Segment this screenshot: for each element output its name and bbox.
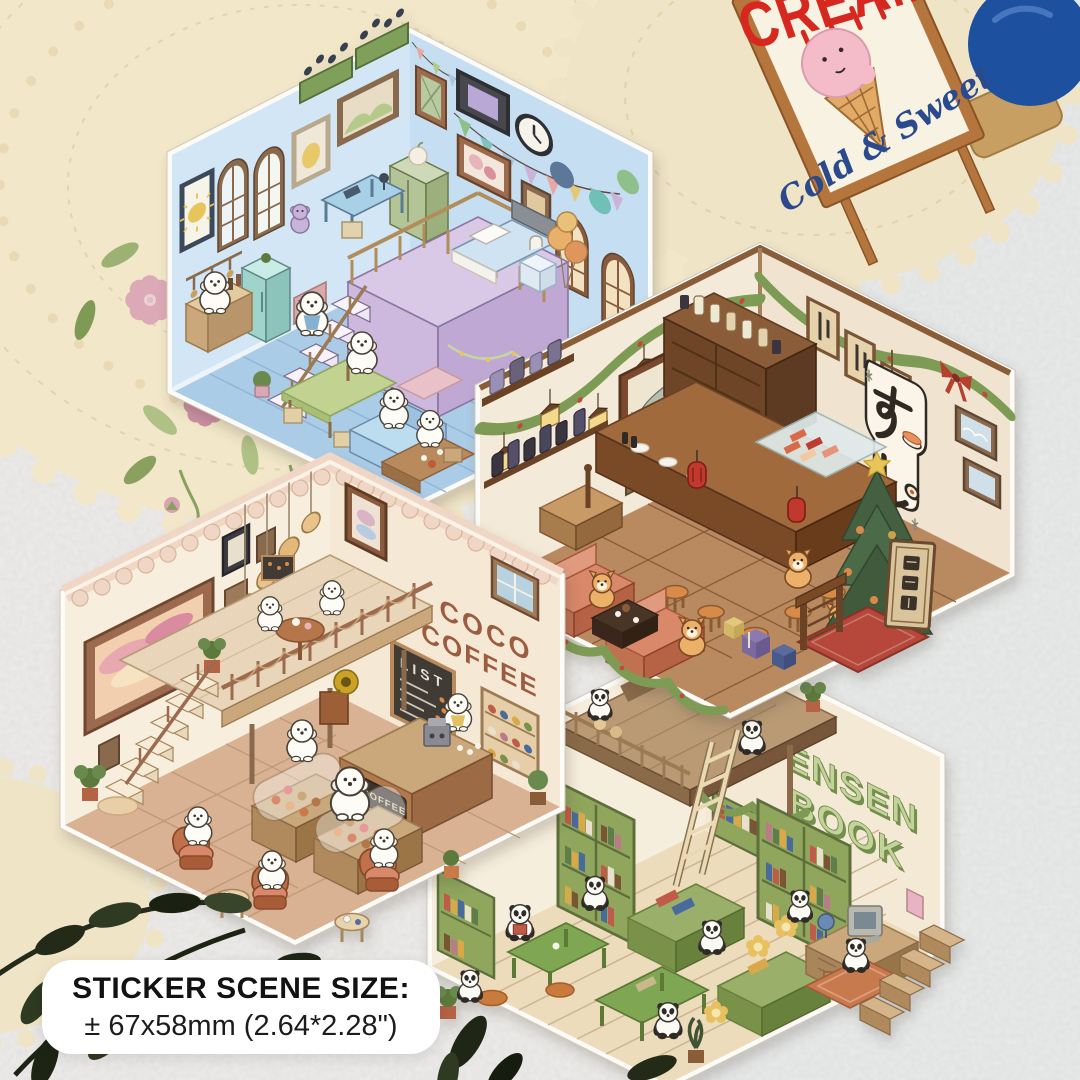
open-sign-plaque bbox=[885, 541, 935, 630]
size-label-title: STICKER SCENE SIZE: bbox=[72, 972, 410, 1006]
artwork: CREAM Cold & Sweet bbox=[0, 0, 1080, 1080]
size-label-dimensions: ± 67x58mm (2.64*2.28") bbox=[84, 1010, 397, 1043]
product-photo: CREAM Cold & Sweet bbox=[0, 0, 1080, 1080]
size-label-card: STICKER SCENE SIZE: ± 67x58mm (2.64*2.28… bbox=[42, 960, 440, 1054]
teddy-bear bbox=[291, 205, 310, 234]
